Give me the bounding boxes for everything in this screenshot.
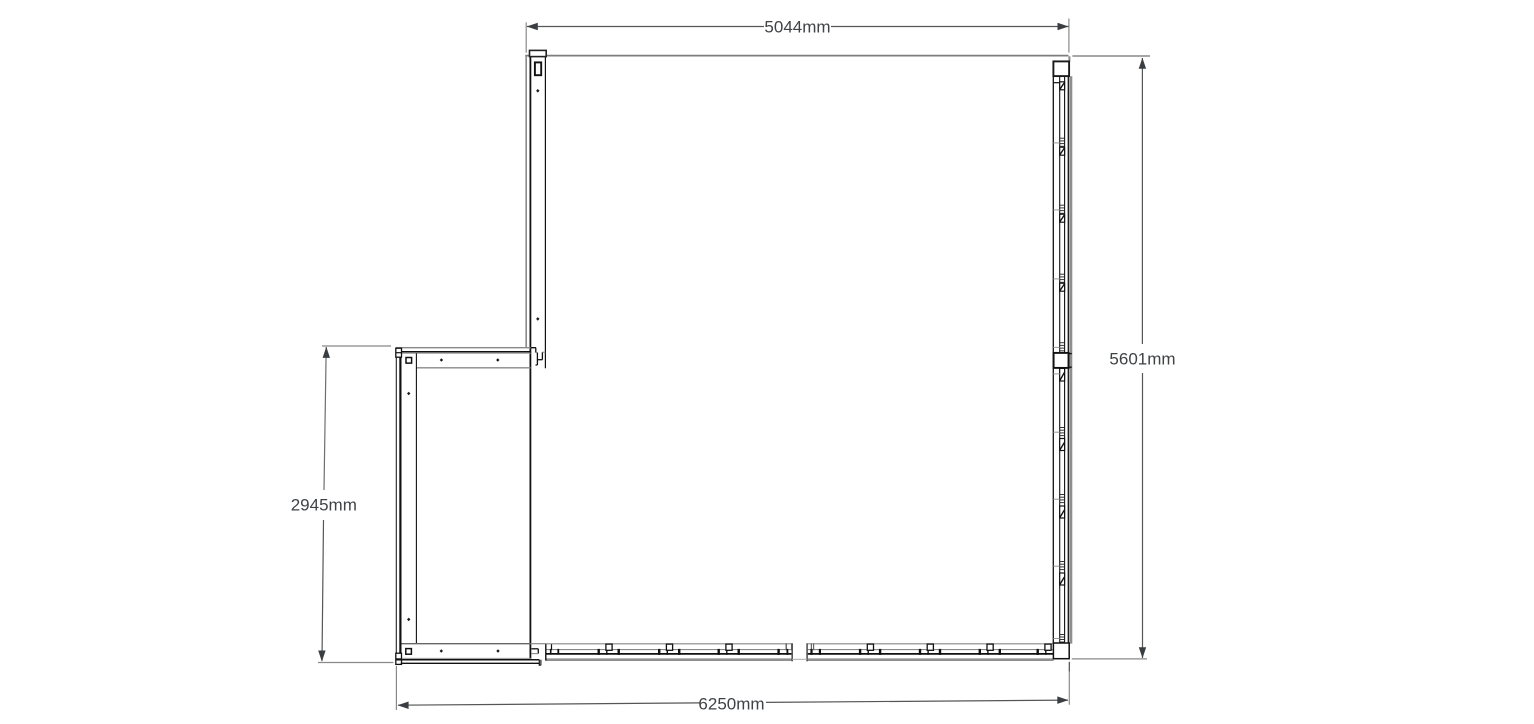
svg-text:5044mm: 5044mm (764, 18, 830, 37)
svg-text:2945mm: 2945mm (291, 496, 357, 515)
svg-text:5601mm: 5601mm (1109, 350, 1175, 369)
svg-text:6250mm: 6250mm (698, 695, 764, 714)
